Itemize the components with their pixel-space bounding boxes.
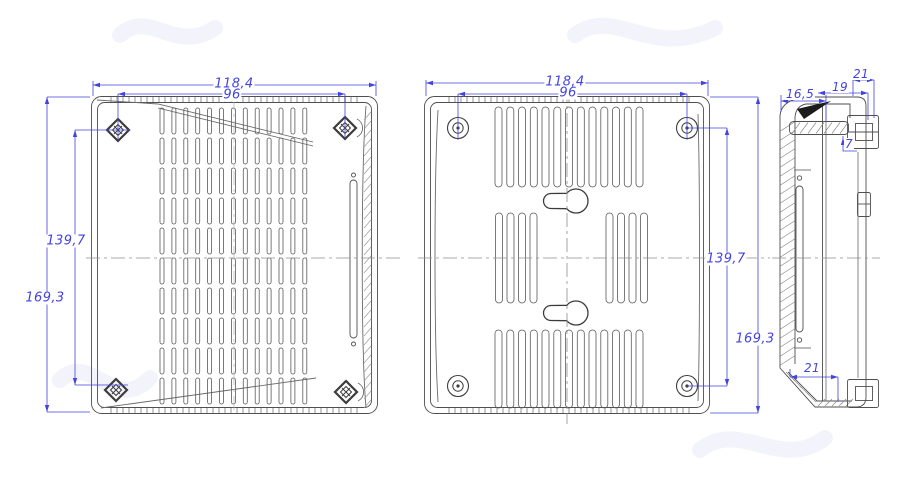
fin-rib-segment [267,138,271,164]
fin-rib-segment [279,168,283,194]
fin-rib-segment [220,108,224,134]
front-hatch-band [364,112,371,408]
fin-rib-segment [172,378,176,404]
fin-rib-segment [255,108,259,134]
fin-rib-segment [184,288,188,314]
fin-rib-segment [255,258,259,284]
fin-rib-segment [208,138,212,164]
fin-rib-segment [231,348,235,374]
fin-rib-segment [208,228,212,254]
fin-rib-segment [208,168,212,194]
fin-rib-segment [231,318,235,344]
fin-rib-segment [160,108,164,134]
fin-rib-segment [267,288,271,314]
fin-rib-segment [303,348,307,374]
fin-rib-segment [291,138,295,164]
fin-rib-segment [255,348,259,374]
fin-rib-segment [291,378,295,404]
fin-rib-segment [303,318,307,344]
fin-rib-segment [196,228,200,254]
mounting-keyhole-top [544,189,589,213]
fin-rib-segment [303,138,307,164]
fin-rib-segment [172,168,176,194]
fin-rib-segment [291,348,295,374]
fin-rib-segment [255,318,259,344]
vent-slot [636,107,643,187]
vent-slot [507,107,514,187]
fin-rib-segment [160,258,164,284]
fin-rib-segment [184,138,188,164]
fin-rib-segment [231,138,235,164]
fin-rib-segment [208,318,212,344]
fin-rib-segment [184,378,188,404]
fin-rib-segment [184,108,188,134]
fin-top-diagonal [97,100,313,146]
vent-slot [566,330,573,408]
dim-label-side-depth-body: 16,5 [785,88,815,100]
fin-rib-segment [220,198,224,224]
vent-slot [495,330,502,408]
fin-rib-segment [231,288,235,314]
fin-rib-segment [160,288,164,314]
fin-rib-segment [172,318,176,344]
fin-rib-segment [196,138,200,164]
vent-slot [577,330,584,408]
dim-line-front-height-screws [75,130,130,385]
fin-rib-segment [184,168,188,194]
fin-rib-segment [279,348,283,374]
fin-rib-segment [220,228,224,254]
fin-rib-segment [220,288,224,314]
dim-label-back-height-bosses: 139,7 [705,253,746,266]
fin-rib-segment [231,198,235,224]
vent-slot [589,107,596,187]
fin-rib-segment [196,348,200,374]
front-outline-inner [98,103,372,408]
fin-rib-segment [267,348,271,374]
front-outline-outer [92,97,378,414]
fin-rib-segment [279,138,283,164]
dim-label-side-bottom-width: 21 [803,362,821,374]
dim-label-side-depth-total: 21 [852,68,870,80]
fin-rib-segment [279,288,283,314]
vent-slot [601,330,608,408]
fin-rib-segment [267,318,271,344]
fin-rib-segment [291,288,295,314]
fin-rib-segment [160,228,164,254]
dim-label-front-height-outer: 169,3 [24,292,65,305]
vent-slot [601,107,608,187]
fin-rib-segment [243,228,247,254]
fin-rib-segment [255,198,259,224]
screw-boss [448,376,469,397]
fin-rib-segment [208,378,212,404]
fin-rib-segment [255,288,259,314]
fin-rib-segment [303,198,307,224]
vent-slot [530,330,537,408]
vent-slot [613,330,620,408]
mounting-keyhole-bottom [544,301,589,325]
fin-rib-segment [303,378,307,404]
vent-slot [554,330,561,408]
back-slots-top [495,107,643,187]
fin-rib-segment [255,138,259,164]
dim-label-front-height-screws: 139,7 [45,235,86,248]
fin-rib-segment [303,108,307,134]
fin-rib-segment [196,378,200,404]
vent-slot [519,330,526,408]
vent-slot [495,107,502,187]
fin-rib-segment [160,318,164,344]
vent-slot [530,107,537,187]
fin-rib-segment [291,258,295,284]
fin-rib-segment [220,258,224,284]
fin-rib-segment [255,228,259,254]
side-view [772,97,880,408]
fin-rib-segment [255,168,259,194]
technical-drawing [0,0,900,500]
fin-rib-segment [196,198,200,224]
fin-rib-segment [243,318,247,344]
fin-rib-segment [291,198,295,224]
fin-rib-segment [172,138,176,164]
fin-rib-segment [184,258,188,284]
fin-rib-segment [279,378,283,404]
fin-rib-segment [291,108,295,134]
fin-rib-segment [184,228,188,254]
fin-rib-segment [267,198,271,224]
fin-rib-segment [291,168,295,194]
fin-rib-segment [243,348,247,374]
vent-slot [636,330,643,408]
fin-rib-segment [160,168,164,194]
fin-rib-segment [160,348,164,374]
fin-rib-segment [220,168,224,194]
fin-rib-segment [279,318,283,344]
fin-rib-segment [196,258,200,284]
fin-rib-segment [196,168,200,194]
fin-rib-segment [231,108,235,134]
fin-rib-segment [243,288,247,314]
vent-slot [507,330,514,408]
fin-rib-segment [184,318,188,344]
front-view [86,96,400,414]
dim-label-side-clip-height: 7 [844,138,854,150]
vent-slot [624,330,631,408]
dim-label-back-width-bosses: 96 [558,87,577,100]
fin-rib-segment [243,258,247,284]
fin-rib-segment [220,318,224,344]
slot-end-hole-top [352,173,356,177]
fin-rib-segment [160,138,164,164]
fin-rib-segment [231,228,235,254]
corner-screw [335,381,357,403]
vent-slot [577,107,584,187]
fin-rib-segment [267,378,271,404]
fin-rib-segment [303,228,307,254]
fin-rib-segment [231,258,235,284]
fin-rib-segment [243,138,247,164]
fin-rib-segment [231,168,235,194]
fin-rib-segment [231,378,235,404]
fin-rib-segment [184,198,188,224]
front-ribs [160,108,307,404]
fin-rib-segment [196,318,200,344]
fin-rib-segment [279,228,283,254]
front-handle-slot [350,180,357,338]
fin-rib-segment [279,108,283,134]
drawing-canvas: 118,4 96 139,7 169,3 118,4 96 139,7 169,… [0,0,900,500]
dim-label-side-depth-step: 19 [831,81,849,93]
fin-rib-segment [220,138,224,164]
dim-label-back-height-outer: 169,3 [734,333,775,346]
vent-slot [519,107,526,187]
vent-slot [566,107,573,187]
fin-rib-segment [279,258,283,284]
fin-rib-segment [172,228,176,254]
vent-slot [613,107,620,187]
fin-rib-segment [196,288,200,314]
fin-rib-segment [243,378,247,404]
fin-rib-segment [291,318,295,344]
back-slots-bottom [495,330,643,408]
fin-rib-segment [208,348,212,374]
fin-rib-segment [220,348,224,374]
fin-rib-segment [255,378,259,404]
fin-rib-segment [267,168,271,194]
vent-slot [542,330,549,408]
fin-rib-segment [243,198,247,224]
fin-rib-segment [172,258,176,284]
slot-end-hole-bottom [352,342,356,346]
vent-slot [589,330,596,408]
fin-rib-segment [184,348,188,374]
fin-rib-segment [279,198,283,224]
fin-rib-segment [172,198,176,224]
fin-rib-segment [303,288,307,314]
dim-label-front-width-screws: 96 [222,89,241,102]
fin-rib-segment [267,228,271,254]
vent-slot [624,107,631,187]
fin-rib-segment [172,288,176,314]
vent-slot [554,107,561,187]
vent-slot [542,107,549,187]
fin-rib-segment [291,228,295,254]
fin-rib-segment [243,168,247,194]
fin-rib-segment [208,258,212,284]
fin-rib-segment [172,348,176,374]
back-right-wall-line [698,114,700,401]
back-left-wall-line [435,110,438,402]
fin-rib-segment [208,198,212,224]
fin-rib-segment [303,168,307,194]
fin-rib-segment [303,258,307,284]
fin-rib-segment [267,108,271,134]
fin-rib-segment [267,258,271,284]
fin-rib-segment [160,198,164,224]
fin-rib-segment [196,108,200,134]
fin-rib-segment [208,288,212,314]
